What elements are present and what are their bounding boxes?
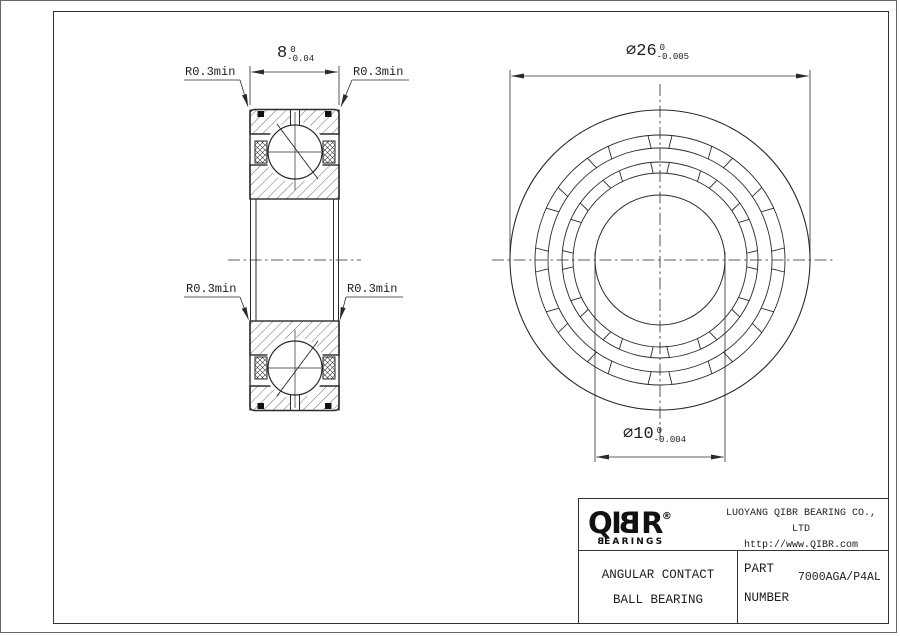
- fillet-leader-top-right: [341, 80, 409, 107]
- title-block: QIBR® BEARINGS LUOYANG QIBR BEARING CO.,…: [578, 498, 889, 624]
- brand-subtitle: BEARINGS: [595, 537, 714, 547]
- outer-dia-tolerance: 0 -0.005: [657, 44, 689, 61]
- fillet-label-mid-right: R0.3min: [347, 283, 397, 296]
- bore-dia-symbol: ∅: [623, 426, 633, 444]
- registered-mark: ®: [662, 511, 672, 522]
- cage-section-bottom-right: [323, 357, 335, 379]
- part-label-line2: NUMBER: [744, 591, 789, 605]
- brand-logo: QIBR® BEARINGS: [579, 499, 714, 550]
- outer-diameter-dimension-text: ∅26 0 -0.005: [626, 43, 689, 61]
- fillet-leader-mid-left: [184, 297, 249, 320]
- part-number-value: 7000AGA/P4AL: [798, 571, 881, 584]
- bore-diameter-dimension-text: ∅10 0 -0.004: [623, 426, 686, 444]
- product-line1: ANGULAR CONTACT: [602, 568, 715, 582]
- fillet-leader-mid-right: [340, 297, 403, 320]
- width-dimension-text: 8 0 -0.04: [277, 45, 314, 63]
- width-value: 8: [277, 45, 287, 63]
- bore-dia-tolerance: 0 -0.004: [654, 427, 686, 444]
- title-block-detail-row: ANGULAR CONTACT BALL BEARING PART NUMBER…: [579, 551, 888, 623]
- part-label-line1: PART: [744, 562, 774, 576]
- company-info: LUOYANG QIBR BEARING CO., LTD http://www…: [714, 499, 888, 550]
- bore-dia-value: 10: [633, 426, 653, 444]
- outer-dia-symbol: ∅: [626, 43, 636, 61]
- seal-bottom-right: [325, 403, 332, 409]
- seal-bottom-left: [258, 403, 265, 409]
- width-tolerance: 0 -0.04: [287, 46, 314, 63]
- drawing-sheet: R0.3min R0.3min R0.3min R0.3min 8 0 -0.0…: [0, 0, 900, 636]
- fillet-label-top-left: R0.3min: [185, 66, 235, 79]
- brand-wordmark: QIBR®: [588, 502, 714, 538]
- part-number-cell: PART NUMBER 7000AGA/P4AL: [738, 551, 888, 623]
- section-view: [228, 110, 361, 411]
- fillet-leader-top-left: [184, 80, 248, 107]
- cage-section-bottom-left: [255, 357, 267, 379]
- front-view: [492, 84, 833, 440]
- fillet-label-mid-left: R0.3min: [186, 283, 236, 296]
- fillet-label-top-right: R0.3min: [353, 66, 403, 79]
- product-line2: BALL BEARING: [613, 593, 703, 607]
- product-description: ANGULAR CONTACT BALL BEARING: [579, 551, 738, 623]
- seal-top-right: [325, 111, 332, 117]
- outer-dia-value: 26: [636, 43, 656, 61]
- company-name: LUOYANG QIBR BEARING CO., LTD: [714, 506, 888, 538]
- seal-top-left: [258, 111, 265, 117]
- cage-section-top-left: [255, 141, 267, 163]
- title-block-header-row: QIBR® BEARINGS LUOYANG QIBR BEARING CO.,…: [579, 499, 888, 551]
- cage-section-top-right: [323, 141, 335, 163]
